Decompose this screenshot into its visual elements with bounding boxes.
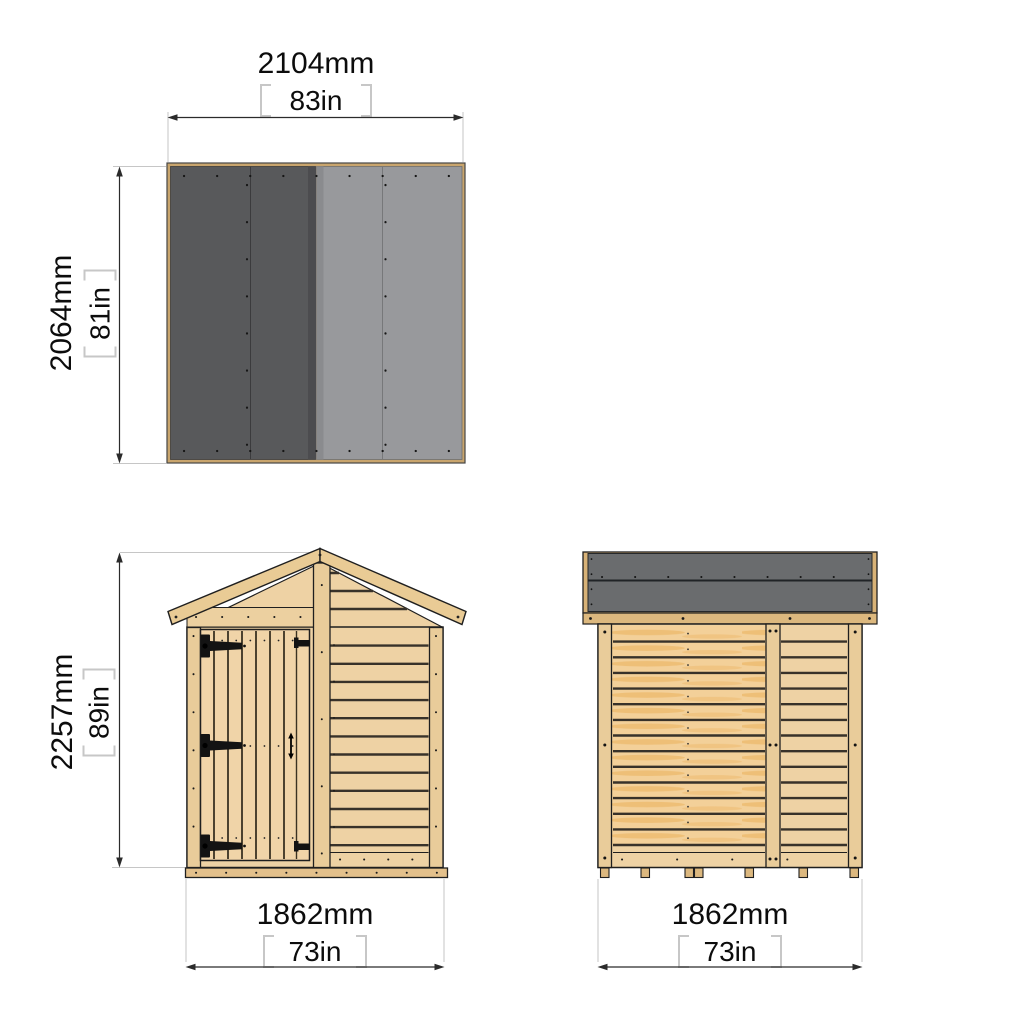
centre-post [314, 563, 331, 868]
fascia-board [583, 613, 877, 624]
rear-inner-post [766, 624, 780, 868]
roof-panels [167, 163, 465, 463]
rear-roof [583, 552, 877, 624]
roofplan-graphic [100, 100, 480, 475]
roofplan-depth-dimension [113, 167, 166, 464]
front-height-mm-label: 2257mm [46, 637, 80, 787]
roof-panel-left [171, 167, 316, 460]
shed-dimension-diagram: 2104mm 83in 2064mm 81in [0, 0, 1024, 1024]
floor-bearers [601, 868, 859, 878]
corner-post-left [187, 628, 201, 868]
corner-post-right [430, 628, 444, 868]
rear-elevation-graphic [560, 540, 900, 980]
roofplan-width-dimension [168, 112, 464, 162]
front-floor [186, 868, 448, 878]
shed-door [201, 630, 311, 861]
roofplan-width-mm-label: 2104mm [166, 47, 466, 81]
front-width-dimension [186, 879, 445, 970]
rear-wall [598, 624, 862, 868]
roof-panel-right [317, 167, 463, 460]
front-elevation-graphic [100, 540, 480, 980]
roofplan-depth-mm-label: 2064mm [45, 238, 79, 388]
rear-width-dimension [598, 879, 863, 970]
